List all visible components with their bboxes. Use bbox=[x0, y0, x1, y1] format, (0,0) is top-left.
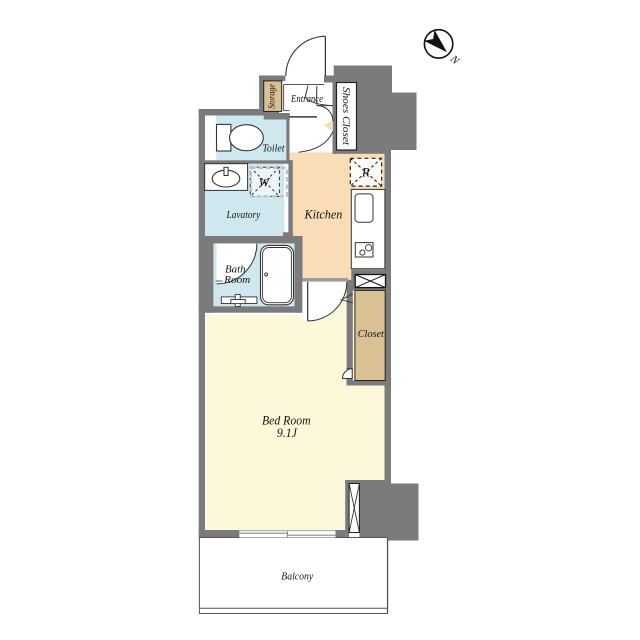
svg-text:Closet: Closet bbox=[358, 329, 385, 340]
svg-text:W: W bbox=[258, 175, 270, 190]
svg-text:R: R bbox=[361, 165, 370, 179]
svg-text:9.1J: 9.1J bbox=[277, 426, 298, 440]
svg-text:Kitchen: Kitchen bbox=[304, 207, 343, 221]
svg-text:Lavatory: Lavatory bbox=[226, 210, 261, 221]
svg-text:Toilet: Toilet bbox=[262, 144, 285, 155]
svg-text:Storage: Storage bbox=[267, 84, 277, 109]
svg-text:Balcony: Balcony bbox=[281, 570, 313, 582]
svg-text:Shoes Closet: Shoes Closet bbox=[340, 87, 351, 146]
svg-text:Room: Room bbox=[223, 274, 250, 286]
